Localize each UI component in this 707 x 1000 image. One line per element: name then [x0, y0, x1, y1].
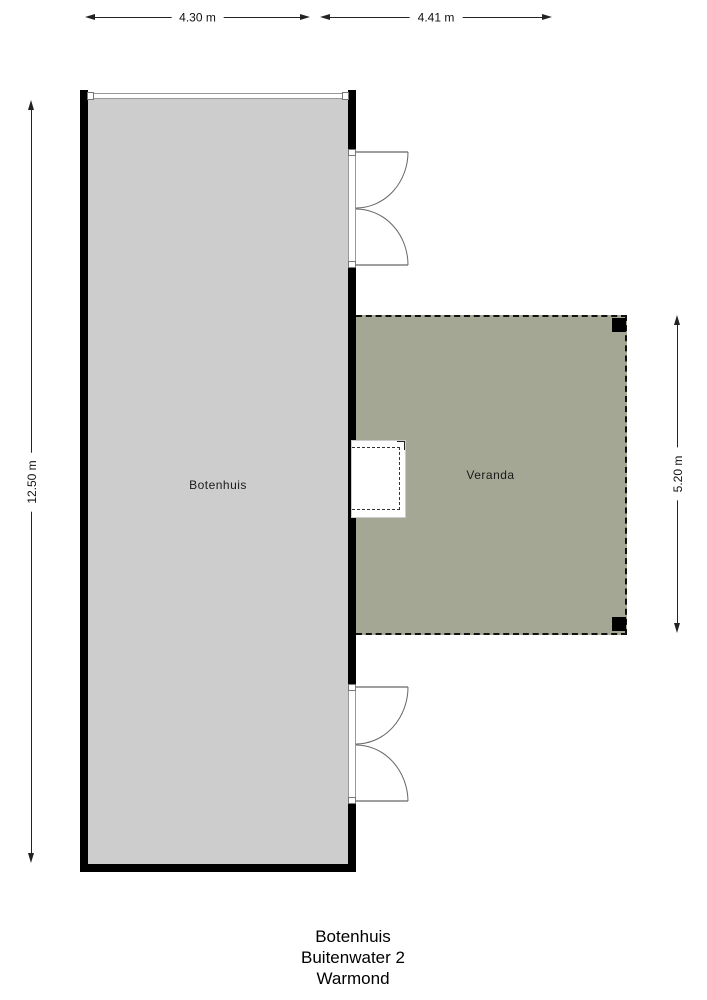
dimension-boathouse-width: 4.30 m — [85, 11, 310, 24]
dimension-veranda-depth: 5.20 m — [671, 315, 684, 633]
dimension-label: 4.41 m — [410, 10, 463, 24]
double-door-bottom — [356, 685, 414, 803]
title-city: Warmond — [203, 968, 503, 989]
arrow-right-icon — [542, 14, 552, 20]
dimension-label: 12.50 m — [25, 452, 39, 511]
title-address: Buitenwater 2 — [203, 947, 503, 968]
door-frame-cap — [348, 149, 356, 156]
arrow-up-icon — [28, 100, 34, 110]
boathouse-label: Botenhuis — [88, 478, 348, 492]
arrow-down-icon — [674, 623, 680, 633]
wall-bottom — [80, 864, 356, 872]
veranda-post-top — [612, 318, 626, 332]
window-frame-cap — [342, 92, 349, 100]
front-window-wall — [88, 93, 348, 99]
floor-plan: 4.30 m 4.41 m 12.50 m 5.20 m Veranda Bot… — [0, 0, 707, 1000]
door-frame-cap — [348, 684, 356, 691]
arrow-left-icon — [85, 14, 95, 20]
veranda-label: Veranda — [466, 468, 514, 482]
arrow-right-icon — [300, 14, 310, 20]
dimension-label: 4.30 m — [171, 10, 224, 24]
window-frame-cap — [87, 92, 94, 100]
arrow-up-icon — [674, 315, 680, 325]
arrow-down-icon — [28, 853, 34, 863]
title-block: Botenhuis Buitenwater 2 Warmond — [203, 926, 503, 989]
wall-left — [80, 90, 88, 872]
veranda-post-bottom — [612, 617, 626, 631]
double-door-top — [356, 150, 414, 267]
door-frame-cap — [348, 261, 356, 268]
door-opening-bottom — [348, 685, 356, 803]
title-building: Botenhuis — [203, 926, 503, 947]
arrow-left-icon — [320, 14, 330, 20]
door-opening-top — [348, 150, 356, 267]
dimension-boathouse-length: 12.50 m — [25, 100, 38, 863]
hatch-opening — [351, 440, 406, 518]
boathouse-room: Botenhuis — [88, 99, 348, 864]
door-frame-cap — [348, 797, 356, 804]
hatch-dashed-outline — [352, 447, 400, 510]
dimension-veranda-width: 4.41 m — [320, 11, 552, 24]
dimension-label: 5.20 m — [671, 448, 685, 501]
